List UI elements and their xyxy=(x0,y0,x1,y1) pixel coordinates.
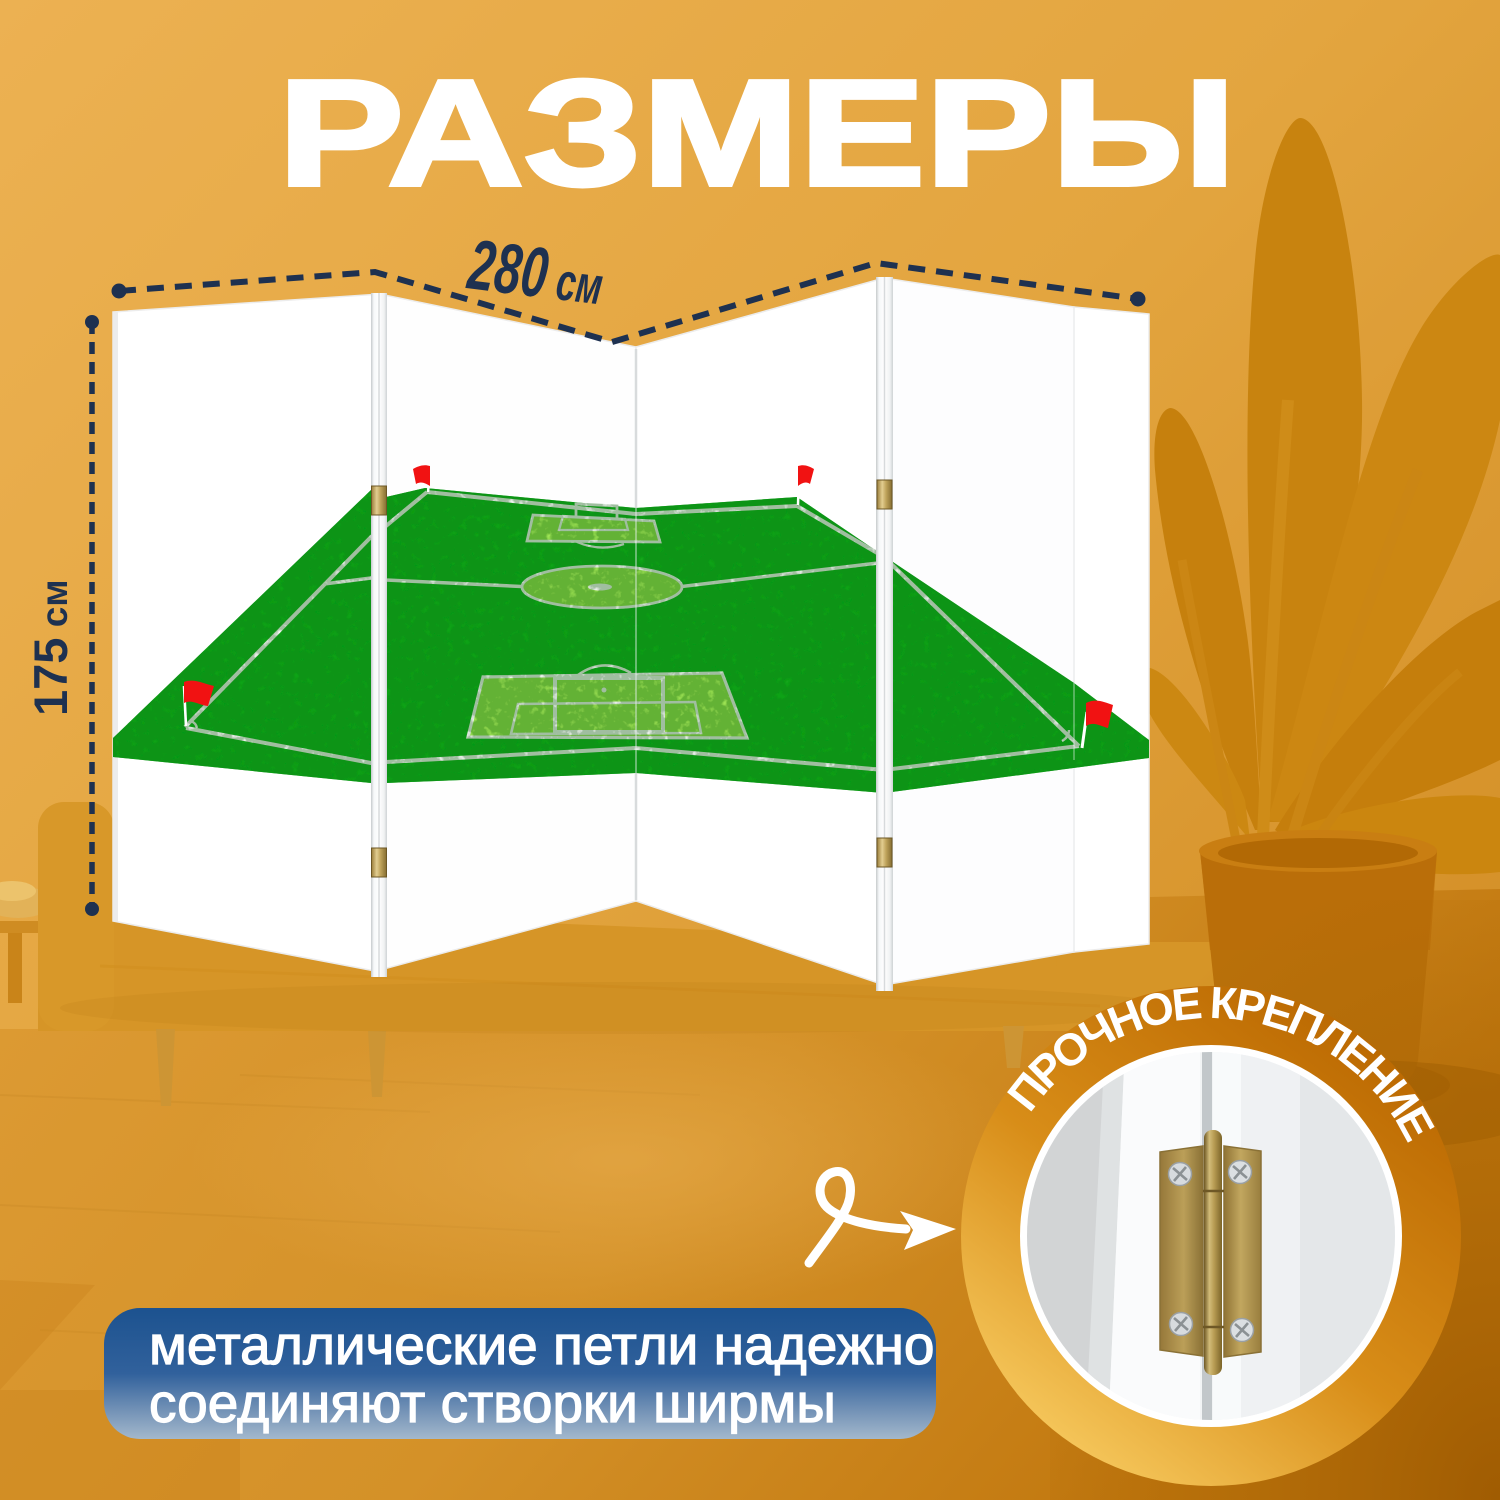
svg-text:соединяют створки ширмы: соединяют створки ширмы xyxy=(149,1372,836,1434)
svg-text:РАЗМЕРЫ: РАЗМЕРЫ xyxy=(278,48,1236,217)
svg-text:металлические петли надежно: металлические петли надежно xyxy=(149,1314,934,1376)
